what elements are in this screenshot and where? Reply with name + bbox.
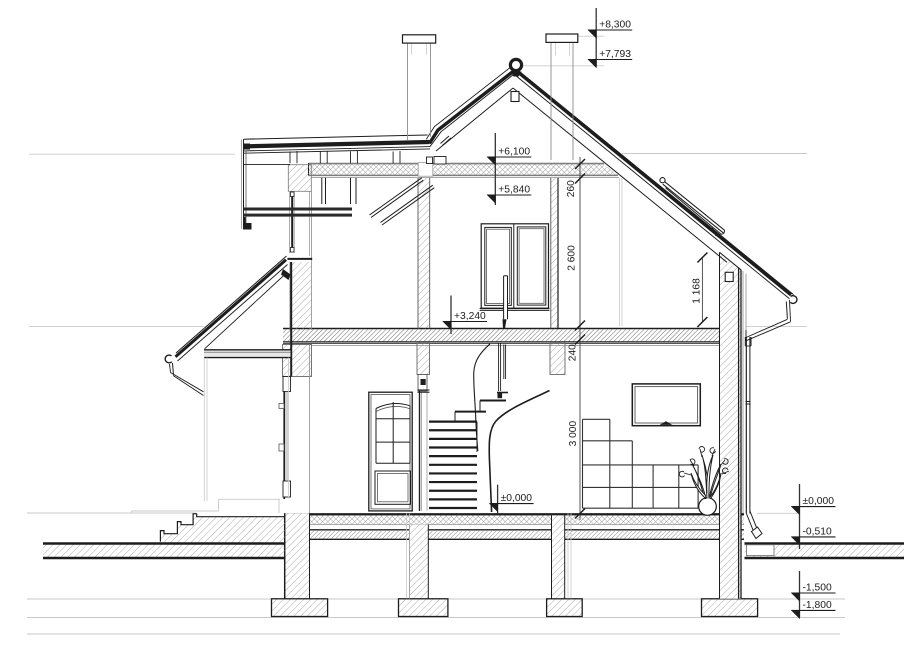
svg-text:+3,240: +3,240 [454,311,486,322]
svg-text:+7,793: +7,793 [599,49,631,60]
svg-text:260: 260 [566,180,577,197]
svg-text:1 168: 1 168 [691,278,702,304]
svg-text:±0,000: ±0,000 [501,493,533,504]
svg-text:-1,500: -1,500 [803,583,832,594]
svg-text:±0,000: ±0,000 [803,496,835,507]
svg-text:-1,800: -1,800 [803,600,832,611]
svg-text:+5,840: +5,840 [498,185,530,196]
svg-text:+8,300: +8,300 [599,20,631,31]
svg-text:240: 240 [568,344,579,361]
svg-text:-0,510: -0,510 [803,526,832,537]
svg-text:+6,100: +6,100 [498,147,530,158]
svg-text:3 000: 3 000 [568,421,579,447]
svg-text:2 600: 2 600 [567,245,578,271]
